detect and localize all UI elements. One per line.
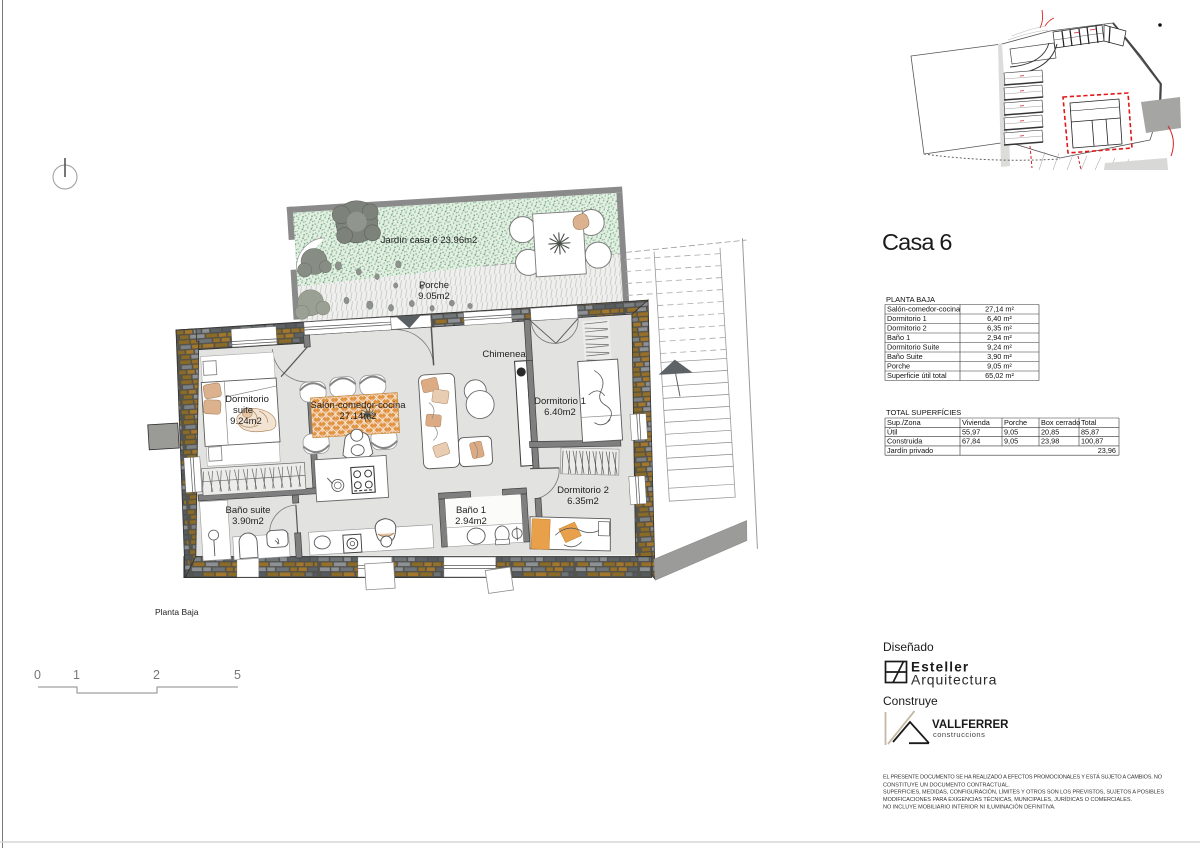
svg-text:2,94 m²: 2,94 m² (987, 333, 1012, 342)
svg-text:5: 5 (234, 668, 241, 682)
svg-text:Diseñado: Diseñado (883, 640, 934, 654)
svg-text:27,14 m²: 27,14 m² (985, 305, 1014, 314)
svg-text:55,97: 55,97 (962, 427, 980, 436)
svg-text:6,40 m²: 6,40 m² (987, 314, 1012, 323)
svg-text:PLANTA BAJA: PLANTA BAJA (886, 295, 935, 304)
svg-text:Dormitorio Suite: Dormitorio Suite (887, 343, 939, 352)
svg-text:9,05 m²: 9,05 m² (987, 362, 1012, 371)
svg-text:Arquitectura: Arquitectura (911, 672, 997, 688)
svg-text:NO INCLUYE MOBILIARIO INTERIOR: NO INCLUYE MOBILIARIO INTERIOR NI ILUMIN… (883, 804, 1056, 811)
svg-text:Porche: Porche (1004, 418, 1027, 427)
svg-text:23,98: 23,98 (1041, 437, 1059, 446)
svg-text:Baño 1: Baño 1 (887, 333, 910, 342)
svg-text:0: 0 (34, 668, 41, 682)
svg-text:Construida: Construida (887, 437, 923, 446)
svg-text:27.14m2: 27.14m2 (340, 411, 377, 422)
svg-text:1: 1 (73, 668, 80, 682)
svg-text:3.90m2: 3.90m2 (232, 516, 264, 527)
svg-text:85,87: 85,87 (1081, 427, 1099, 436)
svg-text:23,96: 23,96 (1098, 446, 1116, 455)
svg-text:Baño suite: Baño suite (226, 505, 271, 516)
svg-text:Útil: Útil (887, 427, 898, 436)
svg-text:suite: suite (233, 405, 253, 416)
svg-text:Baño Suite: Baño Suite (887, 352, 923, 361)
svg-text:Dormitorio 2: Dormitorio 2 (887, 324, 927, 333)
svg-text:6.35m2: 6.35m2 (567, 496, 599, 507)
svg-text:6,35 m²: 6,35 m² (987, 324, 1012, 333)
svg-text:Planta Baja: Planta Baja (155, 607, 199, 617)
svg-text:EL PRESENTE DOCUMENTO SE HA RE: EL PRESENTE DOCUMENTO SE HA REALIZADO A … (883, 774, 1163, 781)
svg-text:2: 2 (153, 668, 160, 682)
svg-text:SUPERFICIES, MEDIDAS, CONFIGUR: SUPERFICIES, MEDIDAS, CONFIGURACIÓN, LÍM… (883, 789, 1164, 796)
svg-text:Baño 1: Baño 1 (456, 505, 486, 516)
svg-text:Box cerrado: Box cerrado (1041, 418, 1080, 427)
svg-text:construccions: construccions (933, 730, 985, 739)
svg-text:9.24m2: 9.24m2 (230, 416, 262, 427)
svg-text:Jardín privado: Jardín privado (887, 446, 933, 455)
svg-text:CONSTITUYE UN DOCUMENTO CONTRA: CONSTITUYE UN DOCUMENTO CONTRACTUAL. (883, 783, 1010, 789)
svg-text:20,85: 20,85 (1041, 427, 1059, 436)
svg-text:Construye: Construye (883, 694, 938, 708)
svg-text:Sup./Zona: Sup./Zona (887, 418, 922, 427)
svg-text:2.94m2: 2.94m2 (455, 516, 487, 527)
svg-text:Dormitorio: Dormitorio (225, 394, 269, 405)
svg-text:65,02 m²: 65,02 m² (985, 371, 1014, 380)
svg-text:TOTAL SUPERFÍCIES: TOTAL SUPERFÍCIES (886, 408, 961, 417)
svg-text:Superficie útil total: Superficie útil total (887, 371, 947, 380)
svg-text:Dormitorio 1: Dormitorio 1 (887, 314, 927, 323)
svg-text:Porche: Porche (419, 280, 449, 291)
svg-text:Jardín casa 6 23.96m2: Jardín casa 6 23.96m2 (381, 235, 478, 246)
svg-text:Casa 6: Casa 6 (882, 229, 952, 255)
svg-text:67,84: 67,84 (962, 437, 980, 446)
svg-text:6.40m2: 6.40m2 (544, 407, 576, 418)
svg-text:Dormitorio 1: Dormitorio 1 (534, 396, 586, 407)
svg-text:MODIFICACIONES PARA EXIGENCIAS: MODIFICACIONES PARA EXIGENCIAS TÉCNICAS,… (883, 796, 1133, 803)
svg-text:3,90 m²: 3,90 m² (987, 352, 1012, 361)
svg-text:9.05m2: 9.05m2 (418, 291, 450, 302)
svg-text:Dormitorio 2: Dormitorio 2 (557, 485, 609, 496)
svg-text:Total: Total (1081, 418, 1097, 427)
svg-text:Chimenea: Chimenea (482, 349, 526, 360)
svg-text:Salón-comedor-cocina: Salón-comedor-cocina (887, 305, 961, 314)
svg-text:9,05: 9,05 (1004, 437, 1018, 446)
svg-text:9,24 m²: 9,24 m² (987, 343, 1012, 352)
svg-text:Vivienda: Vivienda (962, 418, 991, 427)
svg-text:Porche: Porche (887, 362, 910, 371)
svg-text:9,05: 9,05 (1004, 427, 1018, 436)
svg-text:100,87: 100,87 (1081, 437, 1103, 446)
svg-text:Salón-comedor-cocina: Salón-comedor-cocina (310, 400, 406, 411)
